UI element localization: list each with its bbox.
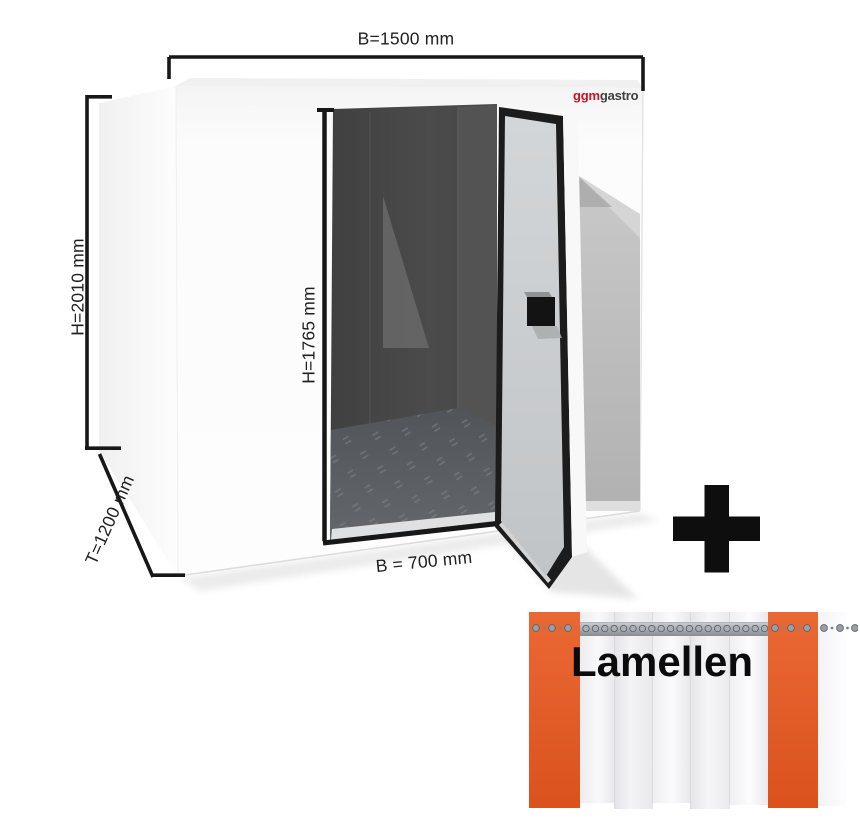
doorway-interior — [330, 104, 497, 541]
door-cast-shadow — [576, 174, 640, 511]
brand-logo-gastro: gastro — [600, 88, 639, 103]
brand-logo: ggmgastro — [573, 88, 638, 103]
plus-icon — [673, 485, 760, 573]
open-door — [495, 107, 587, 589]
product-image: B=1500 mm H=2010 mm H=1765 mm T=1200 mm … — [0, 0, 860, 830]
dimension-label-door-height: H=1765 mm — [299, 286, 320, 384]
dimension-label-width-total: B=1500 mm — [358, 29, 455, 50]
door-handle — [527, 297, 555, 326]
strip-curtain-image: Lamellen — [529, 612, 858, 810]
dimension-label-height-total: H=2010 mm — [68, 238, 89, 336]
brand-logo-ggm: ggm — [573, 88, 600, 103]
addon-label: Lamellen — [571, 638, 753, 686]
door-panel — [501, 116, 564, 576]
